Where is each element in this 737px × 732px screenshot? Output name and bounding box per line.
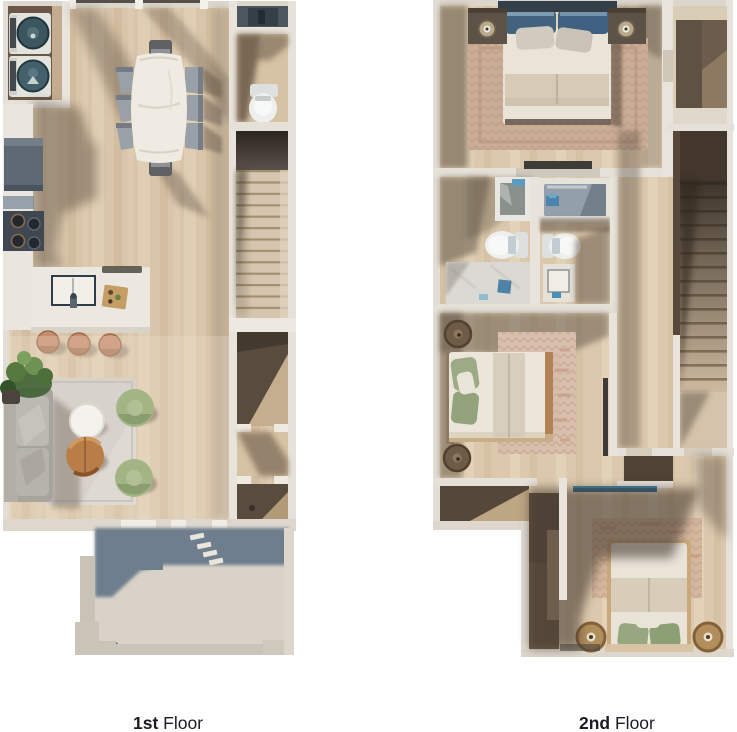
svg-text:2nd Floor: 2nd Floor — [579, 713, 655, 732]
svg-text:1st Floor: 1st Floor — [133, 713, 203, 732]
